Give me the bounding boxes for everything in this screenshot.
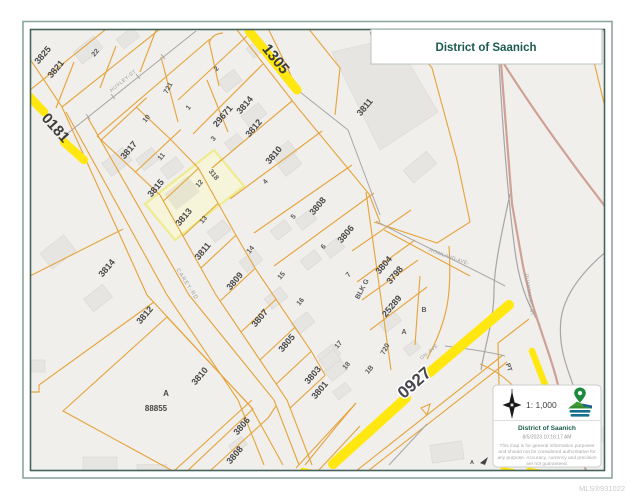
- svg-text:District of Saanich: District of Saanich: [436, 42, 537, 54]
- svg-text:This map is for general inform: This map is for general information purp…: [500, 443, 596, 449]
- svg-text:88855: 88855: [145, 404, 168, 413]
- svg-text:A: A: [163, 389, 169, 398]
- svg-text:B: B: [421, 307, 426, 314]
- svg-text:are not guaranteed.: are not guaranteed.: [526, 461, 568, 467]
- svg-text:1: 1,000: 1: 1,000: [526, 400, 557, 410]
- svg-text:MLS®931022: MLS®931022: [579, 484, 625, 493]
- svg-text:A: A: [401, 329, 406, 336]
- svg-text:District of Saanich: District of Saanich: [518, 425, 576, 432]
- svg-text:any purpose. Accuracy, currenc: any purpose. Accuracy, currency and prec…: [497, 455, 596, 461]
- svg-text:8/5/2023 10:16:17 AM: 8/5/2023 10:16:17 AM: [523, 435, 572, 441]
- svg-text:and should not be considered a: and should not be considered authoritati…: [498, 449, 596, 455]
- svg-text:A: A: [470, 460, 474, 466]
